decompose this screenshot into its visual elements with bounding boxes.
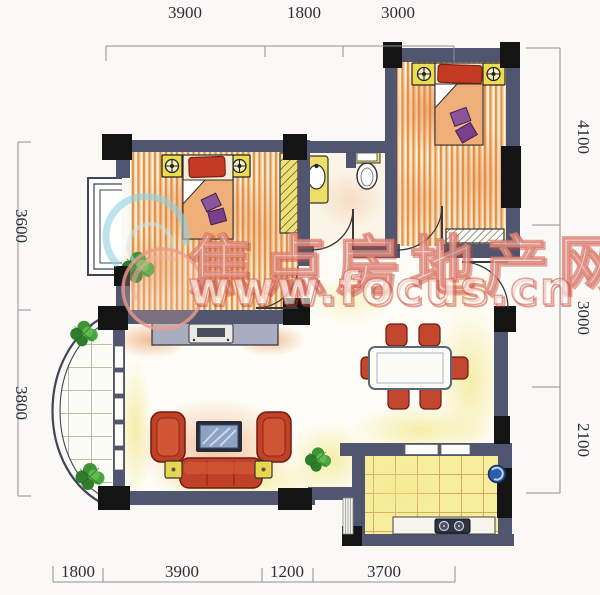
lamp-icon	[418, 68, 431, 81]
wall	[385, 48, 520, 62]
column	[98, 486, 130, 510]
wall	[342, 534, 514, 546]
dim-label: 1800	[61, 562, 95, 581]
toilet-tank	[357, 153, 377, 161]
wall	[352, 456, 365, 534]
dimension-bottom: 1800 3900 1200 3700	[53, 562, 455, 582]
wardrobe	[280, 153, 298, 233]
dimension-left: 3600 3800	[12, 142, 31, 496]
dim-label: 3700	[367, 562, 401, 581]
dim-label: 3900	[165, 562, 199, 581]
column	[278, 488, 312, 510]
dim-label: 3000	[381, 3, 415, 22]
dining-chair	[419, 324, 440, 346]
washbasin	[308, 165, 325, 189]
column	[98, 306, 128, 330]
pillow	[189, 156, 226, 177]
dining-chair	[388, 387, 409, 409]
window	[115, 398, 124, 420]
dim-label: 4100	[574, 120, 593, 154]
watermark-url: www.focus.cn	[188, 262, 575, 315]
window	[115, 450, 124, 470]
lamp-icon	[487, 68, 500, 81]
dim-label: 1800	[287, 3, 321, 22]
window	[115, 424, 124, 446]
column	[283, 134, 307, 160]
dim-label: 2100	[574, 423, 593, 457]
kitchen-opening	[405, 445, 438, 455]
window	[115, 346, 124, 368]
wall	[104, 140, 310, 152]
pillow	[438, 64, 483, 84]
dim-label: 3800	[12, 386, 31, 420]
column	[500, 42, 520, 68]
wall	[346, 141, 356, 168]
column	[494, 416, 510, 444]
window-dark	[501, 146, 521, 208]
column	[102, 134, 132, 160]
lamp-icon	[166, 160, 179, 173]
tv-screen	[197, 328, 225, 337]
faucet-icon	[314, 164, 318, 168]
toilet-bowl	[357, 163, 377, 189]
dining-chair	[420, 387, 441, 409]
floor-plan-screenshot: 焦点房地产网 焦点房地产网 www.focus.cn www.focus.cn …	[0, 0, 600, 595]
coffee-table-glass	[200, 425, 238, 448]
dim-label: 3000	[574, 301, 593, 335]
kitchen-opening	[441, 445, 470, 455]
floor-plan-canvas: 焦点房地产网 焦点房地产网 www.focus.cn www.focus.cn …	[0, 0, 600, 595]
window	[115, 372, 124, 394]
lamp-icon	[233, 160, 246, 173]
dim-label: 1200	[270, 562, 304, 581]
dim-label: 3900	[168, 3, 202, 22]
dining-chair	[386, 324, 407, 346]
dim-label: 3600	[12, 209, 31, 243]
